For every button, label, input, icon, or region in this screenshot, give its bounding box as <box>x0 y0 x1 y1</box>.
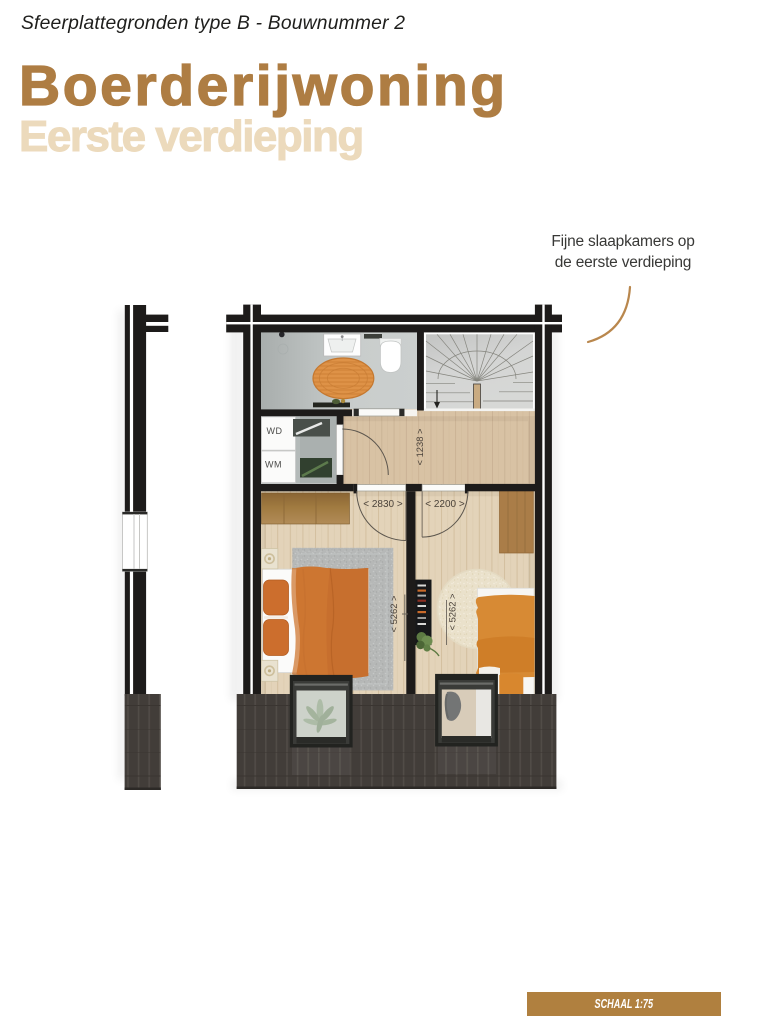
svg-text:< 2200 >: < 2200 > <box>425 499 465 510</box>
svg-text:< 1238 >: < 1238 > <box>414 428 425 466</box>
svg-text:< 5262 >: < 5262 > <box>447 593 458 631</box>
svg-text:WM: WM <box>265 460 282 470</box>
svg-text:WD: WD <box>267 426 283 436</box>
svg-text:< 5262 >: < 5262 > <box>388 595 399 633</box>
svg-text:< 2830 >: < 2830 > <box>363 499 403 510</box>
